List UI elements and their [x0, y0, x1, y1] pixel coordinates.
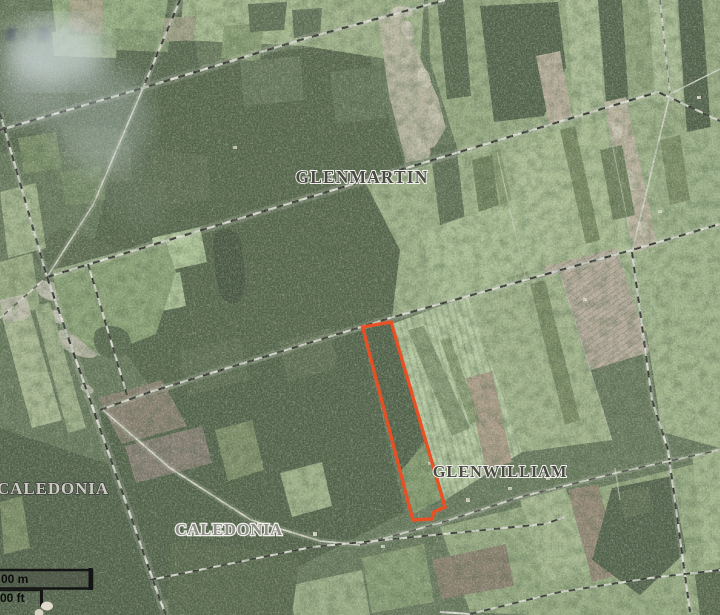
svg-text:GLENWILLIAM: GLENWILLIAM — [433, 462, 567, 481]
svg-text:00 ft: 00 ft — [0, 591, 25, 605]
svg-text:CALEDONIA: CALEDONIA — [175, 520, 283, 539]
svg-text:GLENMARTIN: GLENMARTIN — [296, 167, 429, 187]
svg-text:CALEDONIA: CALEDONIA — [0, 479, 109, 498]
svg-text:00 m: 00 m — [1, 572, 28, 586]
